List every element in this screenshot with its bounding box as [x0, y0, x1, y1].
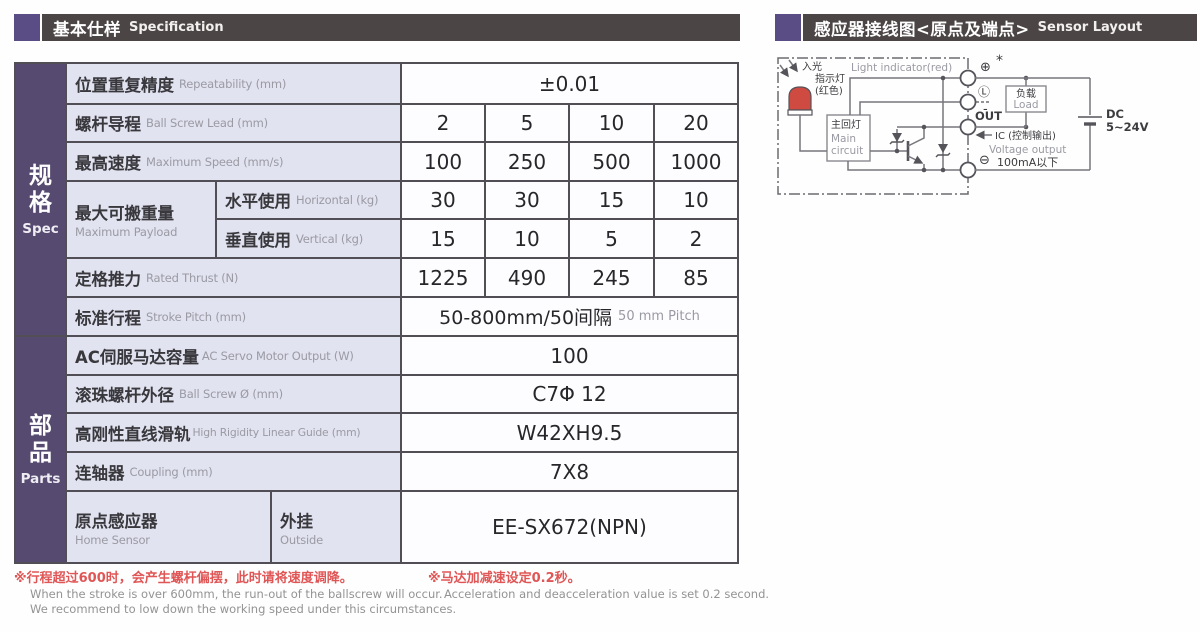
value-vertical-4: 2	[655, 220, 739, 259]
wiring-diagram-svg: 入光 指示灯 (红色) Light indicator(red) 主回灯 Mai…	[775, 54, 1195, 204]
label-en: Maximum Payload	[75, 225, 177, 239]
light-in-label-3: (红色)	[815, 84, 843, 97]
label-zh: 原点感应器	[75, 508, 158, 532]
row-horizontal-label: 水平使用 Horizontal (kg)	[217, 182, 402, 220]
led-icon	[788, 87, 812, 115]
label-zh: 连轴器	[75, 460, 125, 484]
label-en: Vertical (kg)	[296, 232, 363, 246]
label-zh: 水平使用	[225, 188, 291, 212]
row-stroke-pitch-label: 标准行程 Stroke Pitch (mm)	[67, 298, 402, 337]
label-zh: 垂直使用	[225, 227, 291, 251]
row-home-sensor-label: 原点感应器 Home Sensor	[67, 492, 272, 564]
row-ball-screw-lead-label: 螺杆导程 Ball Screw Lead (mm)	[67, 105, 402, 143]
label-zh: AC伺服马达容量	[75, 344, 199, 368]
label-zh: 标准行程	[75, 305, 141, 329]
row-vertical-label: 垂直使用 Vertical (kg)	[217, 220, 402, 259]
out-terminal-label: OUT	[975, 109, 1002, 123]
dc-label: DC	[1106, 107, 1124, 121]
header-bar: 感应器接线图<原点及端点> Sensor Layout	[803, 14, 1197, 41]
footnote-en-line1: Acceleration and deacceleration value is…	[444, 587, 769, 602]
label-en: Repeatability (mm)	[179, 77, 286, 91]
header-accent-square	[14, 14, 40, 41]
star-note-mark: *	[996, 54, 1003, 69]
value-repeatability: ±0.01	[402, 64, 739, 105]
row-max-speed-label: 最高速度 Maximum Speed (mm/s)	[67, 143, 402, 182]
value-lead-3: 10	[570, 105, 655, 143]
footnote-zh: ※马达加减速设定0.2秒。	[428, 570, 769, 587]
value-coupling: 7X8	[402, 453, 739, 492]
dc-range-label: 5~24V	[1106, 120, 1149, 134]
sidebar-parts: 部品 Parts	[16, 337, 67, 564]
label-en: AC Servo Motor Output (W)	[202, 349, 354, 363]
voltage-output-label: Voltage output	[989, 144, 1066, 156]
spec-title-zh: 基本仕样	[53, 16, 121, 40]
label-zh: 定格推力	[75, 266, 141, 290]
footnote-stroke: ※行程超过600时，会产生螺杆偏摆，此时请将速度调降。 When the str…	[14, 570, 456, 617]
main-circuit-en2: circuit	[831, 145, 863, 157]
row-repeatability-label: 位置重复精度 Repeatability (mm)	[67, 64, 402, 105]
label-en: Coupling (mm)	[130, 465, 213, 479]
row-max-payload-label: 最大可搬重量 Maximum Payload	[67, 182, 217, 259]
light-indicator-label: Light indicator(red)	[851, 62, 952, 74]
label-zh: 滚珠螺杆外径	[75, 382, 174, 406]
label-en: Home Sensor	[75, 533, 150, 547]
row-home-sensor-sublabel: 外挂 Outside	[272, 492, 402, 564]
value-home-sensor: EE-SX672(NPN)	[402, 492, 739, 564]
value-vertical-1: 15	[402, 220, 486, 259]
light-in-label-2: 指示灯	[815, 72, 845, 85]
value-speed-4: 1000	[655, 143, 739, 182]
light-ray-arrows-icon	[780, 60, 797, 76]
value-linear-guide: W42XH9.5	[402, 414, 739, 453]
stroke-pitch-zh: 50-800mm/50间隔	[439, 303, 612, 330]
label-en: Stroke Pitch (mm)	[146, 310, 246, 324]
value-horizontal-4: 10	[655, 182, 739, 220]
sidebar-spec-zh: 规格	[27, 163, 55, 217]
current-limit-label: 100mA以下	[997, 156, 1058, 169]
main-circuit-zh: 主回灯	[831, 119, 861, 131]
value-thrust-4: 85	[655, 259, 739, 298]
label-en: Horizontal (kg)	[296, 193, 378, 207]
value-thrust-1: 1225	[402, 259, 486, 298]
main-circuit-en1: Main	[831, 133, 856, 145]
value-vertical-3: 5	[570, 220, 655, 259]
header-accent-square	[775, 14, 801, 41]
value-thrust-2: 490	[486, 259, 570, 298]
footnote-acceleration: ※马达加减速设定0.2秒。 Acceleration and deacceler…	[428, 570, 769, 602]
header-bar: 基本仕样 Specification	[42, 14, 740, 41]
label-en: Ball Screw Lead (mm)	[146, 116, 268, 130]
value-horizontal-1: 30	[402, 182, 486, 220]
label-zh: 高刚性直线滑轨	[75, 421, 191, 445]
sidebar-spec: 规格 Spec	[16, 64, 67, 337]
row-rated-thrust-label: 定格推力 Rated Thrust (N)	[67, 259, 402, 298]
load-label-en: Load	[1013, 99, 1038, 111]
value-stroke-pitch: 50-800mm/50间隔 50 mm Pitch	[402, 298, 739, 337]
plus-terminal-label: ⊕	[980, 60, 991, 75]
value-speed-3: 500	[570, 143, 655, 182]
label-zh: 位置重复精度	[75, 72, 174, 96]
sidebar-spec-en: Spec	[22, 221, 59, 237]
page: 基本仕样 Specification 感应器接线图<原点及端点> Sensor …	[0, 0, 1200, 632]
value-vertical-2: 10	[486, 220, 570, 259]
spec-section-header: 基本仕样 Specification	[14, 14, 740, 41]
label-en: Ball Screw Ø (mm)	[179, 387, 283, 401]
sensor-wiring-diagram: 入光 指示灯 (红色) Light indicator(red) 主回灯 Mai…	[775, 54, 1195, 208]
zener-diode-right-icon	[936, 144, 950, 157]
l-terminal-label: Ⓛ	[978, 85, 990, 99]
stroke-pitch-en: 50 mm Pitch	[618, 309, 700, 324]
sidebar-parts-zh: 部品	[27, 413, 55, 467]
light-in-label-1: 入光	[802, 60, 822, 73]
row-linear-guide-label: 高刚性直线滑轨 High Rigidity Linear Guide (mm)	[67, 414, 402, 453]
row-servo-output-label: AC伺服马达容量 AC Servo Motor Output (W)	[67, 337, 402, 376]
transistor-icon	[908, 127, 924, 170]
sensor-section-header: 感应器接线图<原点及端点> Sensor Layout	[775, 14, 1197, 41]
sidebar-parts-en: Parts	[21, 471, 61, 487]
value-lead-4: 20	[655, 105, 739, 143]
label-en: Maximum Speed (mm/s)	[146, 155, 283, 169]
zener-diode-left-icon	[890, 133, 904, 144]
label-zh: 螺杆导程	[75, 111, 141, 135]
sensor-title-en: Sensor Layout	[1038, 20, 1143, 35]
label-zh: 最高速度	[75, 150, 141, 174]
value-speed-1: 100	[402, 143, 486, 182]
row-coupling-label: 连轴器 Coupling (mm)	[67, 453, 402, 492]
specification-table: 规格 Spec 部品 Parts 位置重复精度 Repeatability (m…	[14, 62, 739, 564]
label-en: High Rigidity Linear Guide (mm)	[193, 426, 361, 439]
value-ball-screw-dia: C7Φ 12	[402, 376, 739, 414]
label-zh: 外挂	[280, 508, 313, 532]
value-thrust-3: 245	[570, 259, 655, 298]
label-en: Outside	[280, 533, 323, 547]
label-zh: 最大可搬重量	[75, 200, 174, 224]
spec-title-en: Specification	[129, 20, 224, 35]
value-horizontal-3: 15	[570, 182, 655, 220]
ic-label: IC (控制输出)	[995, 129, 1056, 142]
value-speed-2: 250	[486, 143, 570, 182]
sensor-title-zh: 感应器接线图<原点及端点>	[814, 16, 1030, 40]
value-lead-2: 5	[486, 105, 570, 143]
row-ball-screw-dia-label: 滚珠螺杆外径 Ball Screw Ø (mm)	[67, 376, 402, 414]
label-en: Rated Thrust (N)	[146, 271, 238, 285]
value-horizontal-2: 30	[486, 182, 570, 220]
footnote-en-line1: When the stroke is over 600mm, the run-o…	[30, 587, 456, 602]
footnote-zh: ※行程超过600时，会产生螺杆偏摆，此时请将速度调降。	[14, 570, 456, 587]
footnote-en-line2: We recommend to low down the working spe…	[30, 602, 456, 617]
value-lead-1: 2	[402, 105, 486, 143]
battery-icon	[1078, 117, 1102, 124]
value-servo-output: 100	[402, 337, 739, 376]
